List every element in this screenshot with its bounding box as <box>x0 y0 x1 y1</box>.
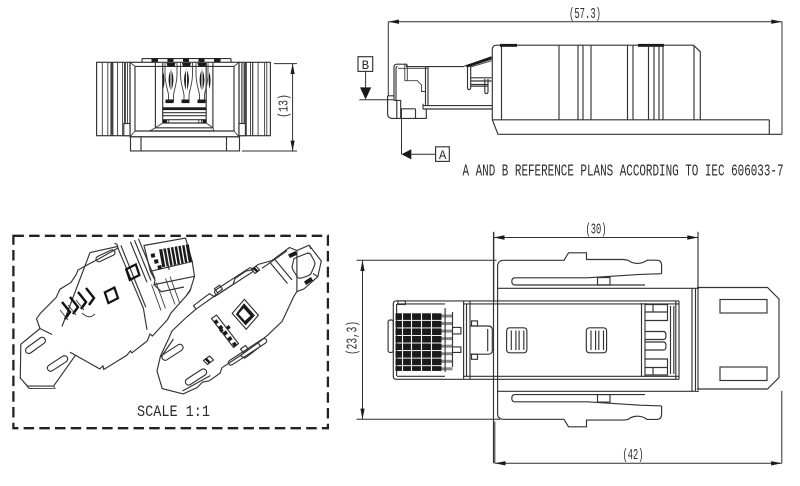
svg-text:(42): (42) <box>623 448 644 464</box>
svg-text:A: A <box>439 149 447 163</box>
svg-text:(30): (30) <box>586 223 607 239</box>
svg-text:B: B <box>362 59 370 73</box>
svg-text:(13): (13) <box>277 94 293 118</box>
svg-text:A AND B REFERENCE PLANS ACCORD: A AND B REFERENCE PLANS ACCORDING TO IEC… <box>463 163 784 182</box>
svg-text:(57.3): (57.3) <box>569 7 601 23</box>
svg-text:SCALE 1:1: SCALE 1:1 <box>137 403 210 421</box>
svg-text:(23,3): (23,3) <box>346 321 362 355</box>
